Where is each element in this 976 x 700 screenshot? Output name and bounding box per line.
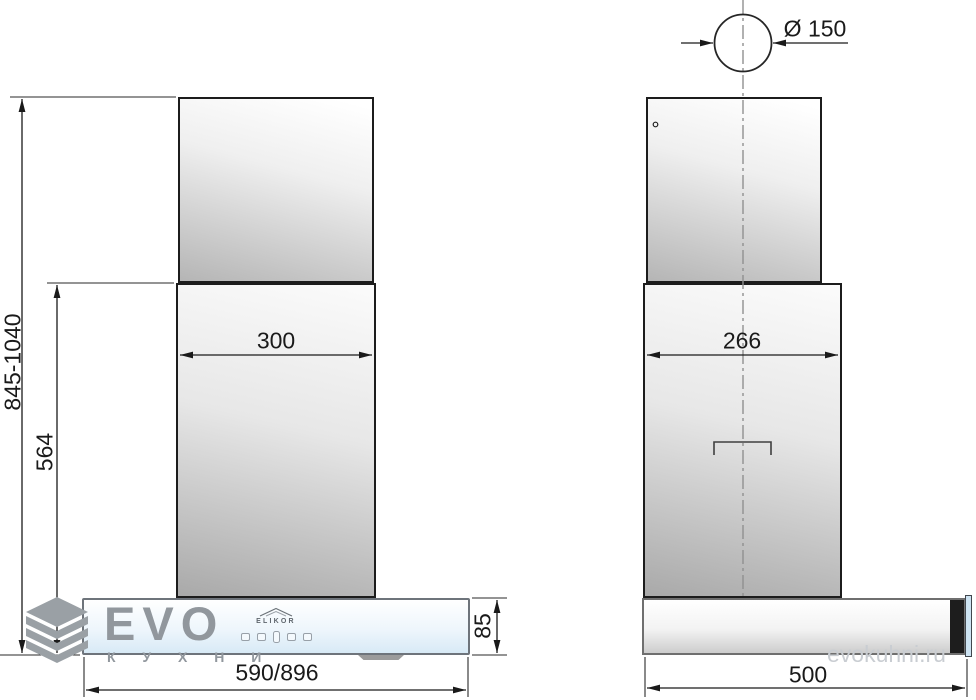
dim-label-height-range: 845-1040	[0, 313, 27, 410]
button-icon	[303, 633, 312, 641]
flue-circle	[715, 15, 772, 72]
dim-label-body-width: 590/896	[235, 660, 318, 687]
dim-label-chimney-depth: 266	[723, 328, 761, 355]
button-icon	[287, 633, 296, 641]
display-icon	[273, 631, 280, 643]
site-watermark: evokuhni.ru	[827, 641, 946, 668]
dim-label-lower-height: 564	[32, 433, 59, 471]
hood-front-edge	[950, 600, 964, 653]
evo-watermark: EVO К У Х Н И	[104, 600, 273, 664]
hood-lamp	[358, 655, 404, 660]
isometric-cube-icon	[24, 596, 90, 676]
dim-label-body-height: 85	[470, 613, 497, 639]
evo-watermark-main: EVO	[104, 600, 273, 647]
glass-panel-edge	[965, 595, 972, 657]
side-view-upper-chimney	[646, 97, 822, 283]
dim-label-chimney-width: 300	[257, 328, 295, 355]
front-view-upper-chimney	[178, 97, 374, 283]
dim-label-flue-diameter: Ø 150	[784, 16, 847, 43]
dim-label-body-depth: 500	[789, 662, 827, 689]
technical-drawing-canvas: ELIKOR	[0, 0, 976, 700]
